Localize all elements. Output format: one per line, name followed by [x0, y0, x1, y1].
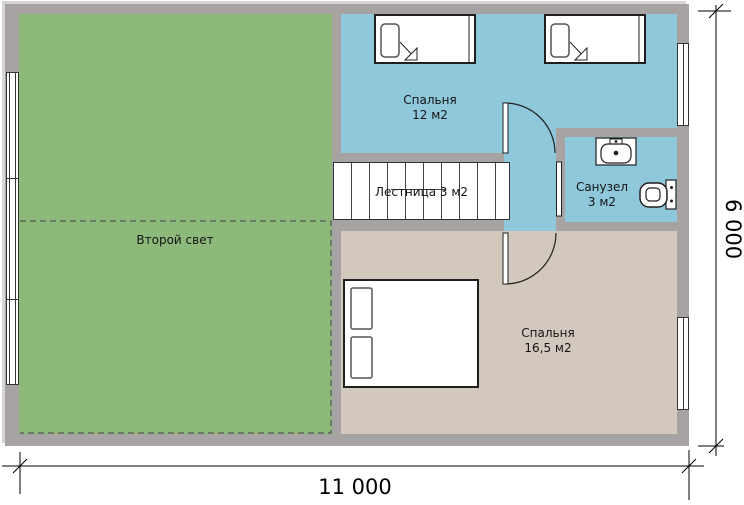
window-pane: [683, 44, 684, 125]
stairs: Лестница 3 м2: [333, 162, 510, 220]
window-icon: [6, 72, 19, 385]
dimension-height-label: 6 000: [721, 194, 744, 264]
room-area: 16,5 м2: [468, 341, 628, 356]
dimension-tick: [13, 459, 27, 473]
window-divider: [7, 178, 18, 179]
dimension-tick: [709, 439, 723, 453]
window-pane: [683, 318, 684, 409]
window-icon: [677, 43, 689, 126]
dimension-width-label: 11 000: [285, 475, 425, 499]
dimension-tick: [682, 459, 696, 473]
room-second-light: [19, 14, 332, 434]
room-label-bedroom-large: Спальня 16,5 м2: [468, 326, 628, 356]
room-area: 12 м2: [350, 108, 510, 123]
dimension-tick: [709, 4, 723, 18]
window-divider: [7, 299, 18, 300]
floor-plan: Лестница 3 м2: [0, 0, 744, 505]
room-bedroom-small-lower: [341, 128, 556, 153]
window-icon: [677, 317, 689, 410]
room-label-second-light: Второй свет: [95, 233, 255, 248]
room-label-bathroom: Санузел 3 м2: [542, 180, 662, 210]
room-name: Санузел: [542, 180, 662, 195]
room-name: Спальня: [468, 326, 628, 341]
window-pane: [9, 73, 16, 384]
room-name: Второй свет: [136, 233, 213, 247]
room-area: 3 м2: [542, 195, 662, 210]
stairs-label: Лестница 3 м2: [375, 185, 468, 200]
room-label-bedroom-small: Спальня 12 м2: [350, 93, 510, 123]
room-name: Спальня: [350, 93, 510, 108]
